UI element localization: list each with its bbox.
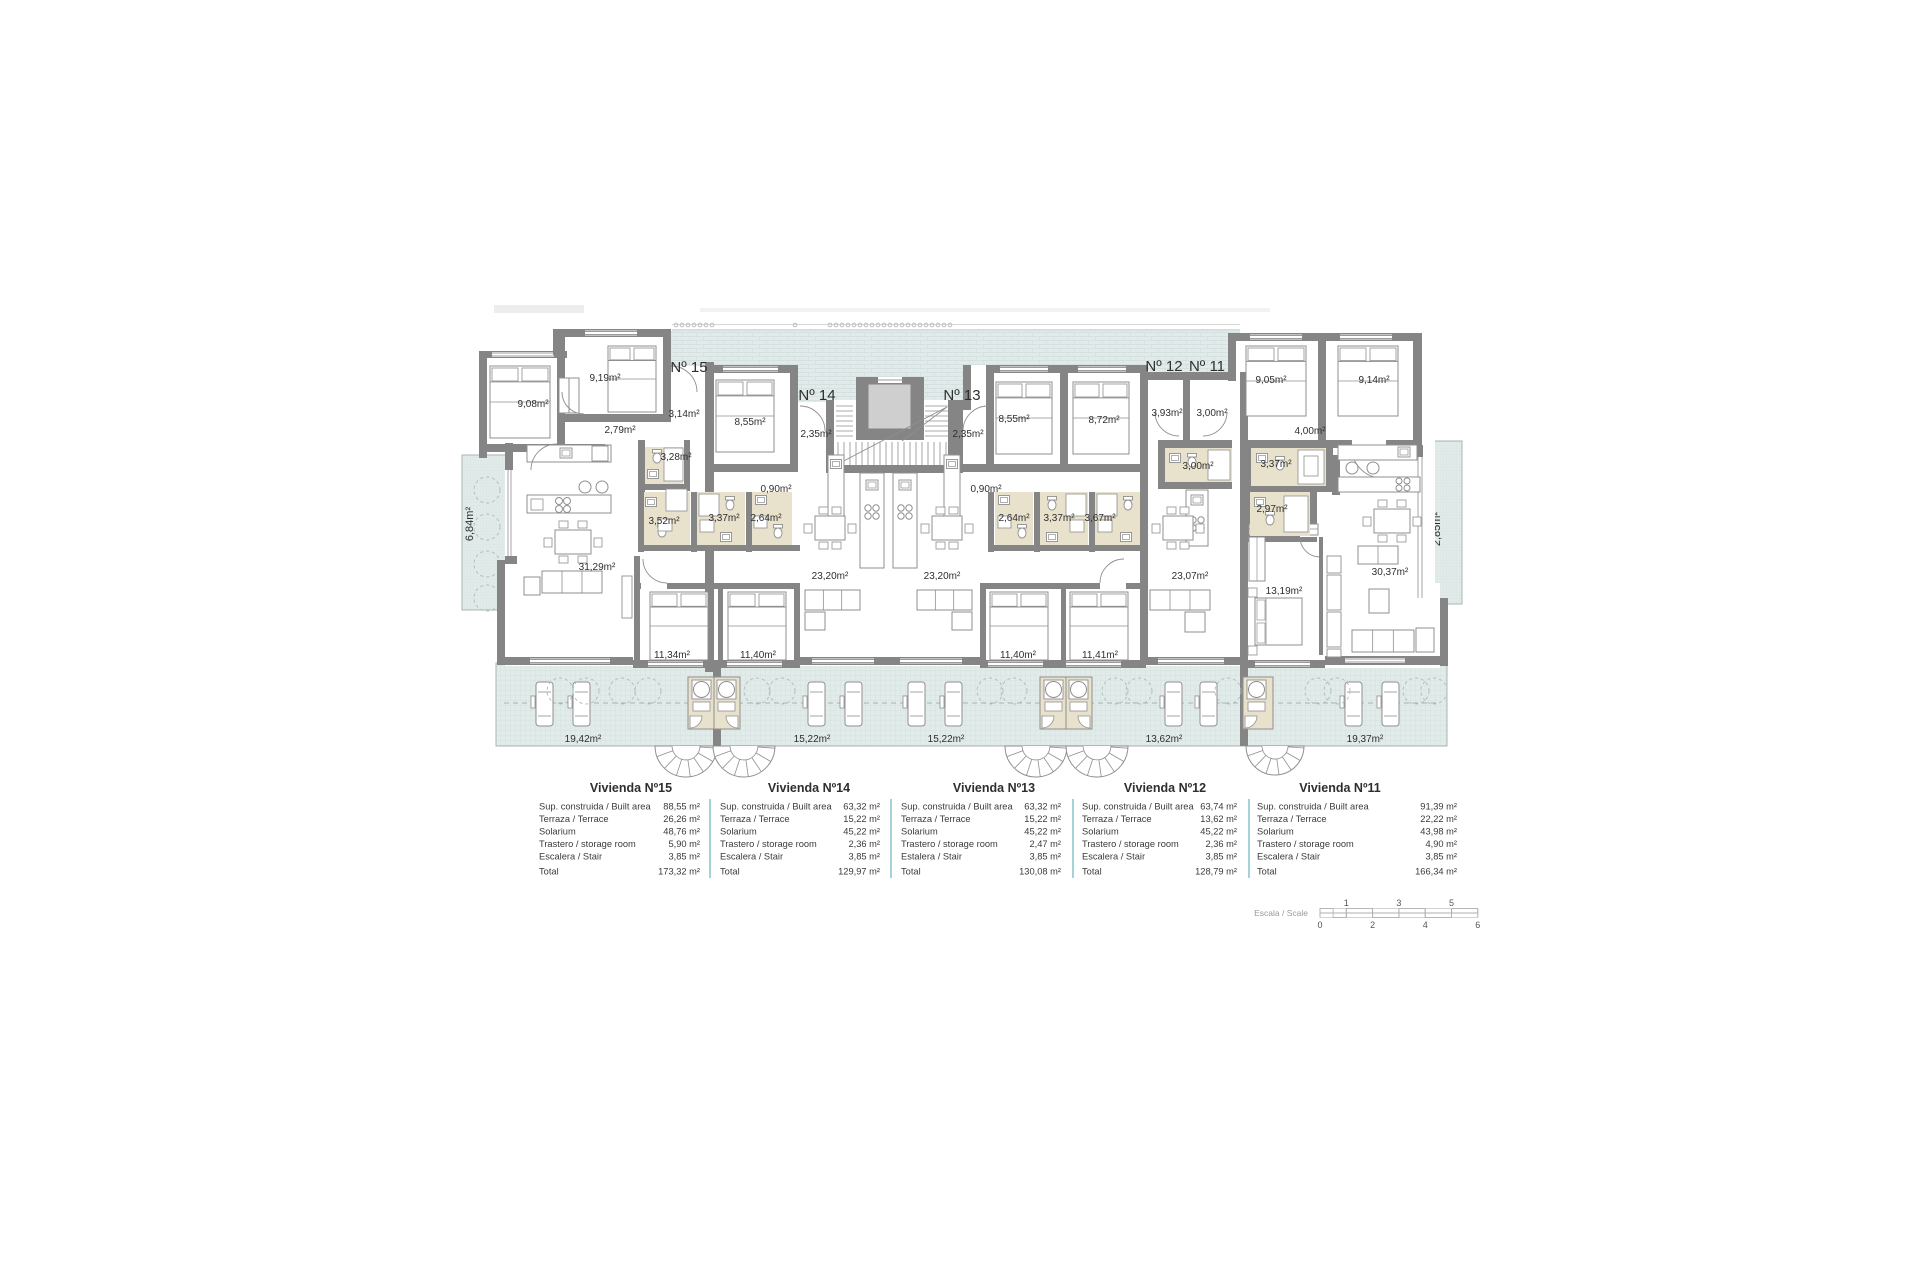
svg-text:129,97 m²: 129,97 m² (838, 867, 880, 877)
svg-text:23,20m²: 23,20m² (812, 571, 849, 582)
svg-text:3,85 m²: 3,85 m² (1425, 852, 1457, 862)
svg-text:45,22 m²: 45,22 m² (1200, 827, 1237, 837)
svg-text:Estalera / Stair: Estalera / Stair (901, 852, 962, 862)
svg-text:2,97m²: 2,97m² (1256, 504, 1288, 515)
svg-text:Trastero / storage room: Trastero / storage room (1082, 839, 1179, 849)
svg-text:Solarium: Solarium (539, 827, 576, 837)
svg-text:3,93m²: 3,93m² (1151, 408, 1183, 419)
svg-text:Total: Total (1257, 867, 1277, 877)
svg-text:8,55m²: 8,55m² (734, 417, 766, 428)
svg-text:Terraza / Terrace: Terraza / Terrace (1082, 814, 1152, 824)
svg-text:2,64m²: 2,64m² (998, 513, 1030, 524)
svg-text:3,37m²: 3,37m² (1260, 459, 1292, 470)
svg-text:13,62m²: 13,62m² (1146, 734, 1183, 745)
svg-text:2,35m²: 2,35m² (800, 429, 832, 440)
svg-text:Terraza / Terrace: Terraza / Terrace (1257, 814, 1327, 824)
svg-text:15,22m²: 15,22m² (928, 734, 965, 745)
svg-text:Trastero / storage room: Trastero / storage room (720, 839, 817, 849)
svg-text:63,74 m²: 63,74 m² (1200, 802, 1237, 812)
svg-text:Sup. construida / Built area: Sup. construida / Built area (1257, 802, 1369, 812)
svg-text:43,98 m²: 43,98 m² (1420, 827, 1457, 837)
svg-text:3,00m²: 3,00m² (1182, 461, 1214, 472)
svg-text:2,47 m²: 2,47 m² (1029, 839, 1061, 849)
svg-text:Sup. construida / Built area: Sup. construida / Built area (1082, 802, 1194, 812)
svg-text:3,28m²: 3,28m² (660, 452, 692, 463)
svg-text:Terraza / Terrace: Terraza / Terrace (720, 814, 790, 824)
svg-text:15,22m²: 15,22m² (794, 734, 831, 745)
svg-text:Trastero / storage room: Trastero / storage room (901, 839, 998, 849)
svg-text:Escalera / Stair: Escalera / Stair (1082, 852, 1145, 862)
svg-text:13,19m²: 13,19m² (1266, 586, 1303, 597)
svg-text:Nº 13: Nº 13 (943, 387, 980, 404)
svg-text:8,72m²: 8,72m² (1088, 415, 1120, 426)
svg-text:Nº 11: Nº 11 (1189, 358, 1225, 375)
svg-text:Solarium: Solarium (1257, 827, 1294, 837)
svg-text:45,22 m²: 45,22 m² (843, 827, 880, 837)
svg-text:11,41m²: 11,41m² (1082, 650, 1119, 661)
svg-text:9,14m²: 9,14m² (1358, 375, 1390, 386)
svg-text:63,32 m²: 63,32 m² (1024, 802, 1061, 812)
svg-text:6,84m²: 6,84m² (464, 507, 476, 542)
svg-text:128,79 m²: 128,79 m² (1195, 867, 1237, 877)
svg-text:Nº 14: Nº 14 (798, 387, 835, 404)
svg-text:2,79m²: 2,79m² (604, 425, 636, 436)
svg-text:Trastero / storage room: Trastero / storage room (1257, 839, 1354, 849)
svg-text:11,40m²: 11,40m² (1000, 650, 1037, 661)
svg-text:23,20m²: 23,20m² (924, 571, 961, 582)
svg-text:0,90m²: 0,90m² (970, 484, 1002, 495)
svg-text:31,29m²: 31,29m² (579, 562, 616, 573)
svg-text:11,34m²: 11,34m² (654, 650, 691, 661)
svg-text:Solarium: Solarium (720, 827, 757, 837)
svg-text:Vivienda Nº12: Vivienda Nº12 (1124, 781, 1206, 795)
svg-text:Sup. construida / Built area: Sup. construida / Built area (539, 802, 651, 812)
svg-text:5: 5 (1449, 898, 1454, 908)
svg-text:91,39 m²: 91,39 m² (1420, 802, 1457, 812)
svg-text:8,55m²: 8,55m² (998, 414, 1030, 425)
svg-text:173,32 m²: 173,32 m² (658, 867, 700, 877)
svg-text:3,52m²: 3,52m² (648, 516, 680, 527)
svg-text:9,08m²: 9,08m² (517, 399, 549, 410)
svg-text:3,14m²: 3,14m² (668, 409, 700, 420)
svg-text:Total: Total (539, 867, 559, 877)
svg-text:5,90 m²: 5,90 m² (668, 839, 700, 849)
svg-text:4,00m²: 4,00m² (1294, 426, 1326, 437)
svg-text:Trastero / storage room: Trastero / storage room (539, 839, 636, 849)
svg-text:Escalera / Stair: Escalera / Stair (539, 852, 602, 862)
svg-text:19,37m²: 19,37m² (1347, 734, 1384, 745)
svg-text:2,36 m²: 2,36 m² (848, 839, 880, 849)
svg-text:4: 4 (1423, 920, 1428, 930)
svg-text:22,22 m²: 22,22 m² (1420, 814, 1457, 824)
svg-text:Solarium: Solarium (901, 827, 938, 837)
svg-text:Sup. construida / Built area: Sup. construida / Built area (901, 802, 1013, 812)
svg-text:Vivienda Nº13: Vivienda Nº13 (953, 781, 1035, 795)
svg-text:48,76 m²: 48,76 m² (663, 827, 700, 837)
svg-text:3,85 m²: 3,85 m² (1205, 852, 1237, 862)
svg-text:Vivienda Nº11: Vivienda Nº11 (1299, 781, 1381, 795)
svg-text:26,26 m²: 26,26 m² (663, 814, 700, 824)
svg-text:3,85 m²: 3,85 m² (848, 852, 880, 862)
svg-text:Solarium: Solarium (1082, 827, 1119, 837)
svg-text:Total: Total (901, 867, 921, 877)
svg-text:0: 0 (1317, 920, 1322, 930)
svg-text:Escala / Scale: Escala / Scale (1254, 908, 1308, 918)
svg-text:Nº 15: Nº 15 (670, 359, 707, 376)
svg-text:3,37m²: 3,37m² (708, 513, 740, 524)
svg-text:3,85 m²: 3,85 m² (668, 852, 700, 862)
svg-text:13,62 m²: 13,62 m² (1200, 814, 1237, 824)
svg-text:11,40m²: 11,40m² (740, 650, 777, 661)
svg-text:Total: Total (720, 867, 740, 877)
svg-text:23,07m²: 23,07m² (1172, 571, 1209, 582)
svg-text:6: 6 (1475, 920, 1480, 930)
svg-text:Vivienda Nº14: Vivienda Nº14 (768, 781, 850, 795)
svg-text:9,19m²: 9,19m² (589, 373, 621, 384)
svg-text:Vivienda Nº15: Vivienda Nº15 (590, 781, 672, 795)
svg-text:Total: Total (1082, 867, 1102, 877)
svg-text:3,85 m²: 3,85 m² (1029, 852, 1061, 862)
svg-text:3,00m²: 3,00m² (1196, 408, 1228, 419)
svg-text:19,42m²: 19,42m² (565, 734, 602, 745)
svg-text:2,36 m²: 2,36 m² (1205, 839, 1237, 849)
svg-text:Nº 12: Nº 12 (1145, 358, 1182, 375)
svg-text:45,22 m²: 45,22 m² (1024, 827, 1061, 837)
svg-text:3,67m²: 3,67m² (1084, 513, 1116, 524)
svg-text:88,55 m²: 88,55 m² (663, 802, 700, 812)
svg-text:Sup. construida / Built area: Sup. construida / Built area (720, 802, 832, 812)
svg-text:0,90m²: 0,90m² (760, 484, 792, 495)
svg-text:3,37m²: 3,37m² (1043, 513, 1075, 524)
svg-text:1: 1 (1344, 898, 1349, 908)
svg-text:30,37m²: 30,37m² (1372, 567, 1409, 578)
svg-text:Terraza / Terrace: Terraza / Terrace (901, 814, 971, 824)
svg-text:3: 3 (1396, 898, 1401, 908)
svg-text:Terraza / Terrace: Terraza / Terrace (539, 814, 609, 824)
svg-text:166,34 m²: 166,34 m² (1415, 867, 1457, 877)
svg-text:2: 2 (1370, 920, 1375, 930)
svg-text:130,08 m²: 130,08 m² (1019, 867, 1061, 877)
svg-text:2,64m²: 2,64m² (750, 513, 782, 524)
svg-text:15,22 m²: 15,22 m² (843, 814, 880, 824)
svg-text:2,35m²: 2,35m² (952, 429, 984, 440)
svg-text:Escalera / Stair: Escalera / Stair (1257, 852, 1320, 862)
svg-text:15,22 m²: 15,22 m² (1024, 814, 1061, 824)
svg-text:4,90 m²: 4,90 m² (1425, 839, 1457, 849)
svg-text:9,05m²: 9,05m² (1255, 375, 1287, 386)
svg-text:Escalera / Stair: Escalera / Stair (720, 852, 783, 862)
svg-text:63,32 m²: 63,32 m² (843, 802, 880, 812)
